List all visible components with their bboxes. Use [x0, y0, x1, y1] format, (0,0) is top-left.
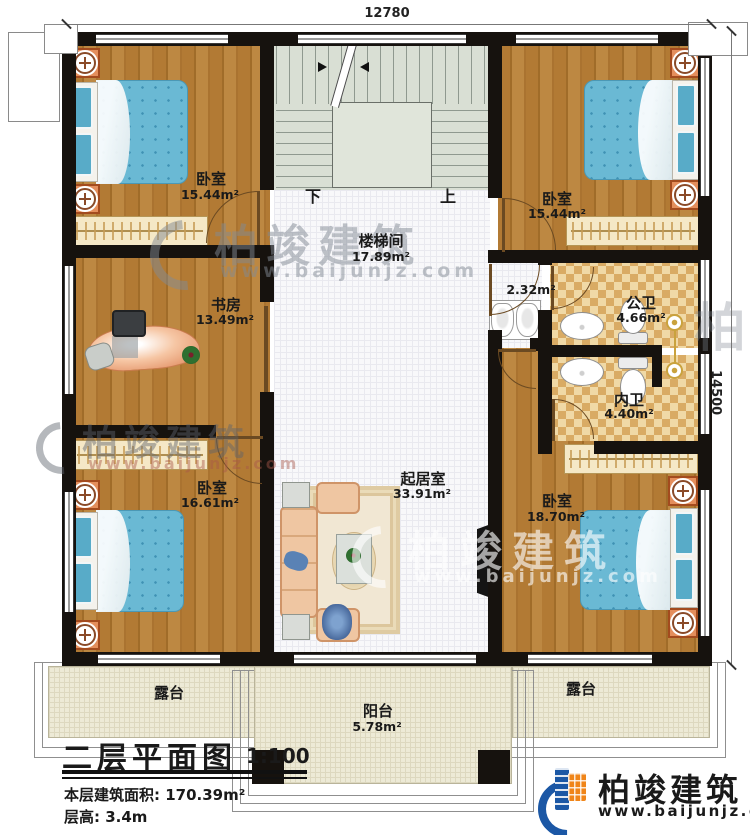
lamp-icon [74, 52, 96, 74]
hangers-icon [572, 222, 693, 240]
lamp-icon [674, 184, 696, 206]
toilet-tank [618, 357, 648, 369]
dimension-line-top [66, 24, 712, 25]
title-rule-thin [62, 777, 307, 779]
bed-pillow [73, 516, 93, 558]
bed-pillow [73, 133, 93, 176]
window [700, 58, 710, 196]
stairs-up-label: 上 [440, 183, 456, 207]
wall-interior [260, 32, 274, 190]
wall-interior [594, 441, 710, 454]
window [98, 654, 220, 664]
room-area-bedroom-tl: 15.44m² [181, 187, 239, 202]
room-area-corridor: 2.32m² [506, 282, 555, 297]
door-leaf [552, 399, 555, 441]
stairs-down-label: 下 [305, 183, 321, 207]
terrace-right-floor [512, 666, 710, 738]
window [96, 34, 228, 44]
balcony-pillar-right [478, 750, 510, 784]
watermark-brand-url: www.baijunjz.com [88, 454, 299, 473]
window [298, 34, 466, 44]
watermark-brand-url: www.baijunjz.com [220, 260, 478, 282]
room-label-bedroom-br: 卧室 [542, 490, 572, 511]
watermark: 柏竣建筑 www.baijunjz.com [36, 418, 316, 476]
side-table [282, 614, 310, 640]
floor-area-line: 本层建筑面积: 170.39m² [64, 784, 245, 805]
room-label-stairwell: 楼梯间 [358, 230, 403, 251]
door-leaf [498, 349, 536, 352]
bathroom-sink [560, 312, 604, 340]
lamp-icon [74, 188, 96, 210]
window [528, 654, 652, 664]
bed-pillow [676, 131, 696, 174]
lamp-icon [74, 484, 96, 506]
washbasin [516, 303, 539, 337]
wardrobe [566, 216, 700, 246]
lamp-icon [672, 612, 694, 634]
stairs-upper-flight [276, 40, 488, 104]
side-table [282, 482, 310, 508]
room-label-terrace-left: 露台 [154, 682, 184, 703]
shower-head-icon [666, 362, 683, 379]
plan-scale: 1:100 [246, 744, 310, 768]
floor-plan-canvas: 下 上 [0, 0, 750, 835]
room-area-ensuite-bath: 4.40m² [604, 406, 653, 421]
wall-interior [488, 32, 502, 198]
wall-interior [488, 330, 502, 666]
bed-pillow [676, 84, 696, 127]
person-figure [322, 604, 352, 640]
stairs-left-flight [276, 104, 332, 188]
wall-interior [652, 345, 662, 387]
lamp-icon [672, 480, 694, 502]
floor-height-line: 层高: 3.4m [64, 806, 147, 827]
room-label-balcony: 阳台 [363, 700, 393, 721]
stairs-landing [332, 102, 432, 188]
stairs-arrow-left [318, 62, 327, 72]
brand-logo-icon [538, 766, 592, 826]
room-area-bedroom-br: 18.70m² [527, 509, 585, 524]
bed-pillow [73, 86, 93, 129]
lamp-icon [74, 624, 96, 646]
wall-interior [538, 441, 552, 454]
room-area-stairwell: 17.89m² [352, 249, 410, 264]
stairs-right-flight [432, 104, 488, 188]
window [64, 492, 74, 612]
wall-interior [538, 310, 552, 441]
dimension-line-right [731, 32, 732, 666]
bed-pillow [674, 512, 694, 555]
room-area-public-bath: 4.66m² [616, 310, 665, 325]
room-label-terrace-right: 露台 [566, 678, 596, 699]
shower-head-icon [666, 314, 683, 331]
bed-sheet [638, 80, 672, 180]
nightstand [668, 608, 698, 638]
bed-sheet [96, 510, 130, 612]
nightstand [668, 476, 698, 506]
logo-building-blue [555, 768, 569, 810]
bed-sheet [96, 80, 130, 184]
watermark-edge-fragment: 柏竣建筑 [694, 286, 750, 361]
title-rule-thick [62, 770, 307, 774]
exterior-detail-box [688, 22, 748, 56]
window [64, 266, 74, 394]
nightstand [670, 180, 700, 210]
brand-website: www.baijunjz.com [598, 802, 750, 820]
terrace-left-floor [48, 666, 255, 738]
room-area-bedroom-bl: 16.61m² [181, 495, 239, 510]
window [700, 490, 710, 636]
window [516, 34, 658, 44]
bathroom-sink [560, 358, 604, 386]
watermark: 柏竣建筑 www.baijunjz.com [352, 520, 662, 590]
wall-interior [550, 345, 662, 357]
stairs-arrow-right [360, 62, 369, 72]
door-leaf [264, 306, 268, 392]
exterior-detail-box [44, 24, 78, 54]
armchair [316, 482, 360, 514]
computer-monitor-icon [112, 310, 146, 337]
bed-pillow [674, 558, 694, 601]
room-label-bedroom-tl: 卧室 [196, 168, 226, 189]
plant-icon [182, 346, 200, 364]
room-area-balcony: 5.78m² [352, 719, 401, 734]
dimension-height-label: 14500 [708, 370, 723, 415]
bed-pillow [73, 562, 93, 604]
watermark-brand-url: www.baijunjz.com [414, 566, 662, 587]
room-area-bedroom-tr: 15.44m² [528, 206, 586, 221]
keyboard-tray [112, 336, 138, 358]
room-area-living: 33.91m² [393, 486, 451, 501]
dimension-width-label: 12780 [364, 6, 409, 21]
logo-building-orange [568, 773, 586, 801]
sliding-door [294, 654, 476, 664]
room-area-study: 13.49m² [196, 312, 254, 327]
